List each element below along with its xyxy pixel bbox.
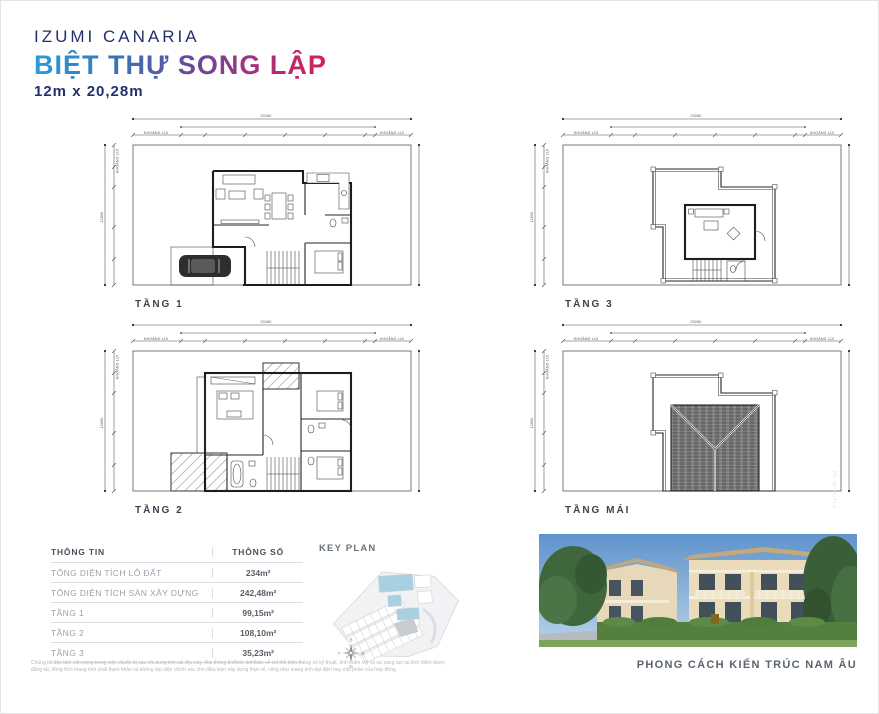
- svg-text:KHOẢNG LÙI: KHOẢNG LÙI: [144, 336, 168, 341]
- spec-table-header-row: THÔNG TIN THÔNG SỐ: [51, 541, 303, 562]
- svg-text:12000: 12000: [530, 212, 534, 223]
- svg-text:20280: 20280: [691, 320, 702, 324]
- tree-left: [539, 546, 607, 626]
- svg-text:KHOẢNG LÙI: KHOẢNG LÙI: [115, 149, 120, 173]
- table-row: TỔNG DIỆN TÍCH SÀN XÂY DỰNG 242,48m²: [51, 582, 303, 602]
- spec-header-thong-tin: THÔNG TIN: [51, 547, 212, 557]
- svg-text:20280: 20280: [261, 114, 272, 118]
- svg-text:T: T: [338, 651, 341, 656]
- spec-value: 242,48m²: [212, 588, 303, 598]
- svg-text:12000: 12000: [100, 418, 104, 429]
- page-header: IZUMI CANARIA BIỆT THỰ SONG LẬP 12m x 20…: [34, 27, 327, 100]
- spec-label: TẦNG 3: [51, 648, 212, 658]
- tang1-car: [179, 255, 231, 277]
- floorplan-tang-3: 20280 KHOẢNG LÙI KHOẢNG LÙI 12000 KHOẢNG…: [523, 109, 853, 310]
- spec-value: 35,23m²: [212, 648, 303, 658]
- svg-text:12000: 12000: [530, 418, 534, 429]
- key-plan-highlight: [378, 574, 413, 592]
- spec-label: TỔNG DIỆN TÍCH SÀN XÂY DỰNG: [51, 588, 212, 598]
- photo-caption: PHONG CÁCH KIẾN TRÚC NAM ÂU: [539, 659, 857, 671]
- table-row: TẦNG 2 108,10m²: [51, 622, 303, 642]
- floorplan-tang-1: 20280 KHOẢNG LÙI KHOẢNG LÙI 12000 KHOẢNG…: [93, 109, 423, 310]
- svg-text:KHOẢNG LÙI: KHOẢNG LÙI: [574, 336, 598, 341]
- floorplan-tang-mai: 20280 KHOẢNG LÙI KHOẢNG LÙI 12000 KHOẢNG…: [523, 315, 853, 516]
- villa-illustration: [539, 534, 857, 647]
- spec-label: TỔNG DIỆN TÍCH LÔ ĐẤT: [51, 568, 212, 578]
- svg-text:12000: 12000: [100, 212, 104, 223]
- villa-render-image: [539, 534, 857, 652]
- spec-label: TẦNG 2: [51, 628, 212, 638]
- lot-size: 12m x 20,28m: [34, 83, 327, 100]
- svg-text:KHOẢNG LÙI: KHOẢNG LÙI: [144, 130, 168, 135]
- key-plan-map: B Đ N T: [319, 557, 479, 669]
- svg-text:KHOẢNG LÙI: KHOẢNG LÙI: [380, 130, 404, 135]
- spec-value: 234m²: [212, 568, 303, 578]
- disclaimer: Chúng tôi đặc biệt cẩn trọng trong việc …: [31, 660, 469, 674]
- sheet-code-watermark: PK.SL04.TL3: [832, 471, 837, 509]
- plan-label-tang-2: TẦNG 2: [135, 505, 423, 516]
- spec-label: TẦNG 1: [51, 608, 212, 618]
- disclaimer-line-2: đăng tải, đồng thời mang tính chất tham …: [31, 667, 469, 674]
- plan-label-tang-mai: TẦNG MÁI: [565, 505, 853, 516]
- spec-value: 108,10m²: [212, 628, 303, 638]
- floorplan-tang-2-drawing: 20280 KHOẢNG LÙI KHOẢNG LÙI 12000 KHOẢNG…: [93, 315, 423, 501]
- table-row: TẦNG 1 99,15m²: [51, 602, 303, 622]
- key-plan: KEY PLAN: [319, 543, 479, 674]
- svg-text:20280: 20280: [691, 114, 702, 118]
- floorplan-tang-2: 20280 KHOẢNG LÙI KHOẢNG LÙI 12000 KHOẢNG…: [93, 315, 423, 516]
- svg-text:KHOẢNG LÙI: KHOẢNG LÙI: [810, 336, 834, 341]
- table-row: TỔNG DIỆN TÍCH LÔ ĐẤT 234m²: [51, 562, 303, 582]
- floorplan-tang-1-drawing: 20280 KHOẢNG LÙI KHOẢNG LÙI 12000 KHOẢNG…: [93, 109, 423, 295]
- project-name: IZUMI CANARIA: [34, 27, 327, 47]
- floorplan-tang-3-drawing: 20280 KHOẢNG LÙI KHOẢNG LÙI 12000 KHOẢNG…: [523, 109, 853, 295]
- plan-label-tang-1: TẦNG 1: [135, 299, 423, 310]
- svg-text:KHOẢNG LÙI: KHOẢNG LÙI: [574, 130, 598, 135]
- svg-text:B: B: [349, 638, 352, 643]
- disclaimer-line-1: Chúng tôi đặc biệt cẩn trọng trong việc …: [31, 660, 469, 667]
- svg-text:KHOẢNG LÙI: KHOẢNG LÙI: [545, 149, 550, 173]
- svg-text:20280: 20280: [261, 320, 272, 324]
- spec-value: 99,15m²: [212, 608, 303, 618]
- floorplan-tang-mai-drawing: 20280 KHOẢNG LÙI KHOẢNG LÙI 12000 KHOẢNG…: [523, 315, 853, 501]
- svg-text:KHOẢNG LÙI: KHOẢNG LÙI: [545, 355, 550, 379]
- svg-text:KHOẢNG LÙI: KHOẢNG LÙI: [810, 130, 834, 135]
- key-plan-title: KEY PLAN: [319, 543, 479, 554]
- mai-roof: [671, 405, 759, 491]
- plan-label-tang-3: TẦNG 3: [565, 299, 853, 310]
- svg-text:KHOẢNG LÙI: KHOẢNG LÙI: [380, 336, 404, 341]
- page-title: BIỆT THỰ SONG LẬP: [34, 50, 327, 81]
- spec-table: THÔNG TIN THÔNG SỐ TỔNG DIỆN TÍCH LÔ ĐẤT…: [51, 541, 303, 663]
- spec-header-thong-so: THÔNG SỐ: [212, 547, 303, 557]
- svg-text:KHOẢNG LÙI: KHOẢNG LÙI: [115, 355, 120, 379]
